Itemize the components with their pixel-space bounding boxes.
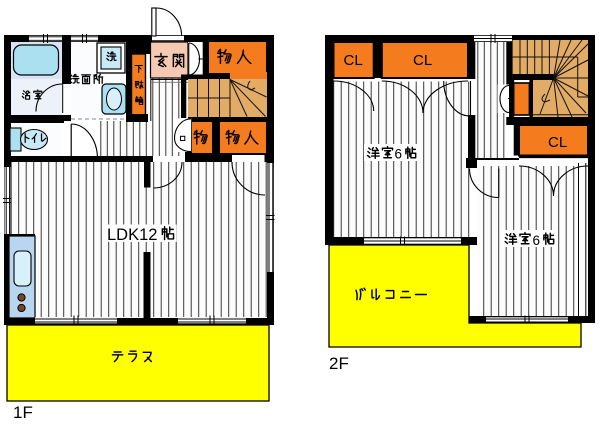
svg-text:CL: CL <box>344 52 363 69</box>
svg-text:LDK12: LDK12 <box>107 226 157 244</box>
svg-text:1F: 1F <box>13 403 33 422</box>
svg-text:6: 6 <box>533 233 541 248</box>
svg-text:CL: CL <box>413 52 432 69</box>
svg-text:6: 6 <box>395 147 403 162</box>
svg-text:CL: CL <box>548 134 567 151</box>
svg-text:2F: 2F <box>329 354 349 373</box>
